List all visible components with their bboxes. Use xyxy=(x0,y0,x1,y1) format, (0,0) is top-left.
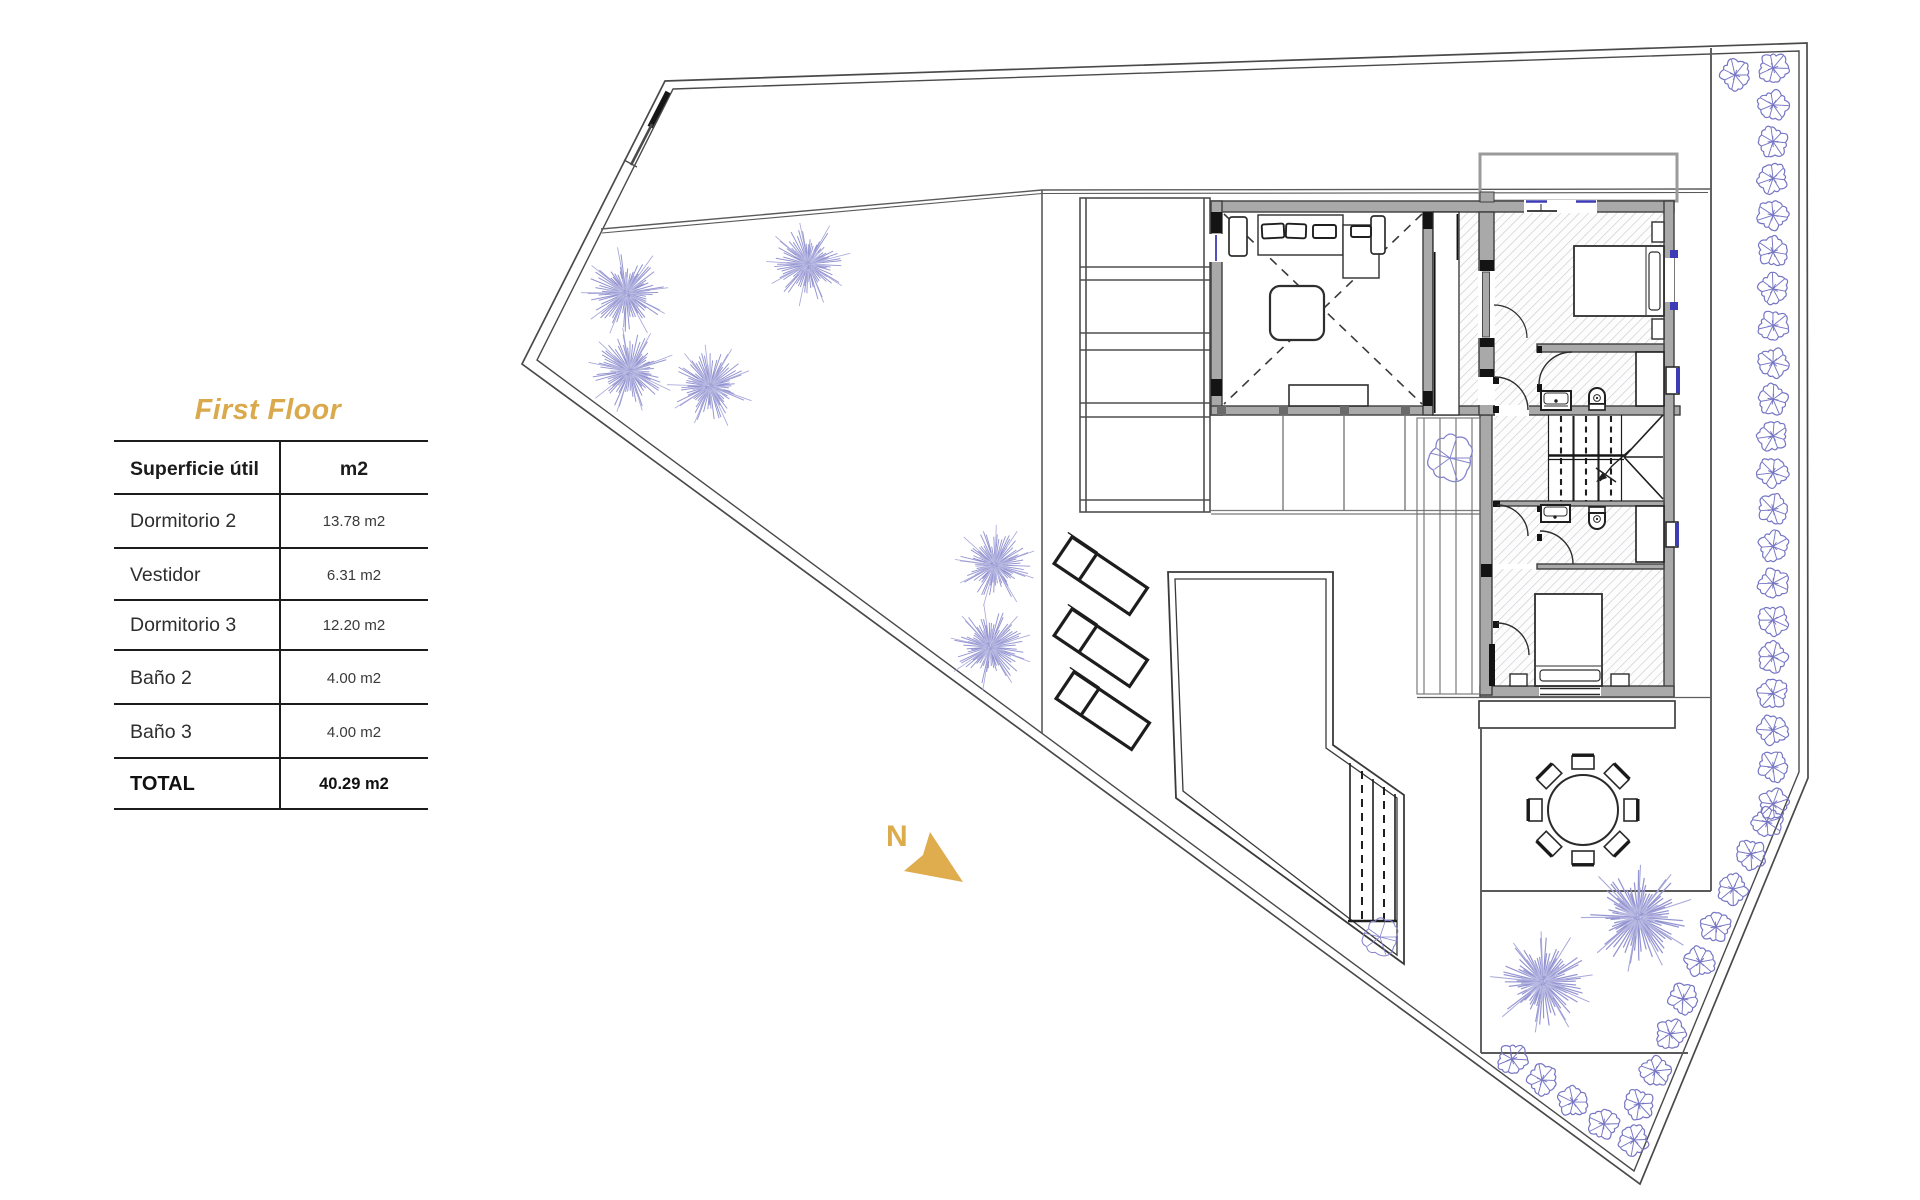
svg-text:Vestidor: Vestidor xyxy=(130,564,201,586)
svg-text:Superficie útil: Superficie útil xyxy=(130,458,259,480)
svg-text:First Floor: First Floor xyxy=(195,394,343,426)
svg-text:m2: m2 xyxy=(340,458,368,480)
svg-text:4.00 m2: 4.00 m2 xyxy=(327,670,381,687)
svg-text:Dormitorio 2: Dormitorio 2 xyxy=(130,510,236,532)
svg-text:Baño 2: Baño 2 xyxy=(130,667,192,689)
svg-text:TOTAL: TOTAL xyxy=(130,773,195,795)
svg-text:Dormitorio 3: Dormitorio 3 xyxy=(130,614,236,636)
svg-text:12.20 m2: 12.20 m2 xyxy=(323,617,386,634)
svg-text:4.00 m2: 4.00 m2 xyxy=(327,724,381,741)
svg-text:N: N xyxy=(886,820,908,853)
svg-text:40.29 m2: 40.29 m2 xyxy=(319,775,389,793)
svg-text:13.78 m2: 13.78 m2 xyxy=(323,513,386,530)
svg-text:Baño 3: Baño 3 xyxy=(130,721,192,743)
svg-text:6.31 m2: 6.31 m2 xyxy=(327,567,381,584)
